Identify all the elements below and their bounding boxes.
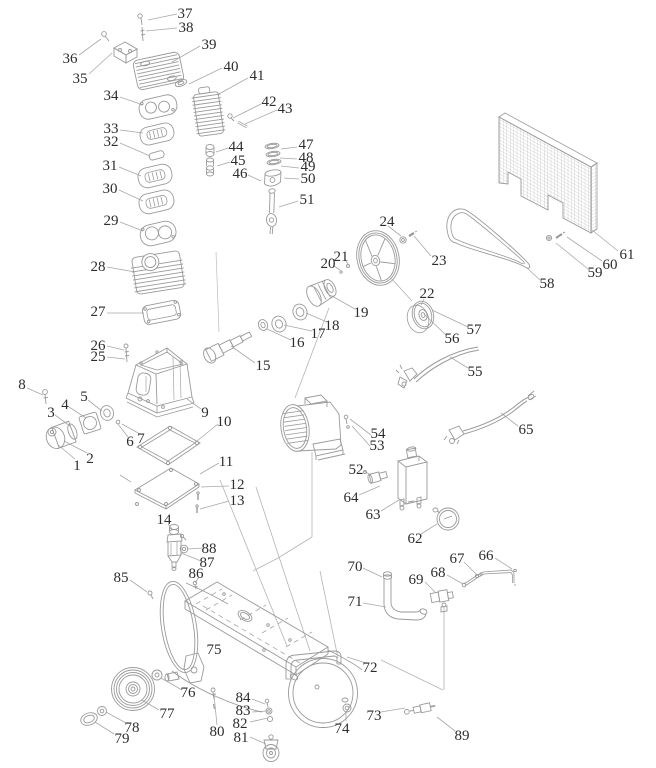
svg-text:51: 51 <box>300 192 315 208</box>
svg-text:79: 79 <box>115 731 130 747</box>
svg-text:42: 42 <box>262 94 277 110</box>
svg-text:73: 73 <box>367 708 382 724</box>
svg-text:50: 50 <box>301 171 316 187</box>
svg-text:40: 40 <box>224 59 239 75</box>
svg-text:15: 15 <box>256 358 271 374</box>
svg-text:69: 69 <box>409 572 424 588</box>
svg-text:36: 36 <box>63 51 79 67</box>
svg-text:11: 11 <box>219 454 233 470</box>
svg-text:33: 33 <box>104 121 119 137</box>
svg-text:75: 75 <box>207 642 222 658</box>
svg-text:5: 5 <box>80 389 88 405</box>
svg-text:65: 65 <box>519 422 534 438</box>
svg-text:43: 43 <box>278 101 293 117</box>
svg-text:87: 87 <box>200 555 216 571</box>
svg-text:66: 66 <box>479 548 495 564</box>
svg-text:38: 38 <box>179 20 194 36</box>
svg-text:35: 35 <box>73 71 88 87</box>
svg-text:80: 80 <box>210 724 225 740</box>
svg-text:26: 26 <box>91 338 107 354</box>
svg-text:41: 41 <box>250 68 265 84</box>
svg-text:31: 31 <box>103 158 118 174</box>
svg-text:27: 27 <box>91 304 107 320</box>
svg-text:88: 88 <box>202 541 217 557</box>
svg-text:46: 46 <box>233 166 249 182</box>
svg-text:7: 7 <box>137 431 145 447</box>
svg-text:84: 84 <box>236 690 252 706</box>
svg-text:6: 6 <box>126 434 134 450</box>
svg-text:64: 64 <box>344 490 360 506</box>
svg-text:4: 4 <box>61 397 69 413</box>
svg-text:1: 1 <box>73 458 81 474</box>
svg-text:9: 9 <box>201 405 209 421</box>
svg-text:8: 8 <box>18 377 26 393</box>
svg-text:18: 18 <box>325 318 340 334</box>
svg-text:2: 2 <box>86 451 94 467</box>
svg-text:70: 70 <box>348 559 363 575</box>
svg-text:29: 29 <box>104 213 119 229</box>
svg-text:74: 74 <box>335 721 351 737</box>
svg-text:60: 60 <box>603 257 618 273</box>
svg-text:68: 68 <box>431 565 446 581</box>
svg-text:57: 57 <box>467 322 483 338</box>
svg-text:89: 89 <box>455 728 470 744</box>
svg-text:52: 52 <box>349 462 364 478</box>
svg-text:71: 71 <box>348 594 363 610</box>
svg-text:54: 54 <box>371 426 387 442</box>
svg-text:19: 19 <box>354 305 369 321</box>
svg-text:76: 76 <box>181 685 197 701</box>
svg-text:28: 28 <box>91 259 106 275</box>
svg-text:10: 10 <box>217 414 232 430</box>
svg-text:85: 85 <box>114 570 129 586</box>
svg-text:67: 67 <box>450 551 466 567</box>
svg-text:77: 77 <box>160 706 176 722</box>
svg-text:63: 63 <box>366 507 381 523</box>
svg-text:21: 21 <box>334 249 349 265</box>
svg-text:62: 62 <box>408 531 423 547</box>
svg-text:14: 14 <box>157 512 173 528</box>
svg-text:55: 55 <box>468 364 483 380</box>
svg-text:23: 23 <box>432 253 447 269</box>
svg-text:58: 58 <box>540 276 555 292</box>
svg-text:24: 24 <box>380 214 396 230</box>
svg-text:81: 81 <box>234 730 249 746</box>
svg-text:39: 39 <box>202 37 217 53</box>
svg-text:56: 56 <box>445 331 461 347</box>
svg-text:34: 34 <box>104 88 120 104</box>
svg-text:61: 61 <box>620 247 635 263</box>
svg-text:16: 16 <box>290 335 306 351</box>
svg-text:30: 30 <box>103 181 118 197</box>
svg-text:59: 59 <box>588 265 603 281</box>
svg-text:13: 13 <box>230 493 245 509</box>
svg-text:12: 12 <box>230 477 245 493</box>
svg-text:22: 22 <box>420 286 435 302</box>
svg-text:72: 72 <box>363 660 378 676</box>
svg-text:3: 3 <box>47 405 55 421</box>
